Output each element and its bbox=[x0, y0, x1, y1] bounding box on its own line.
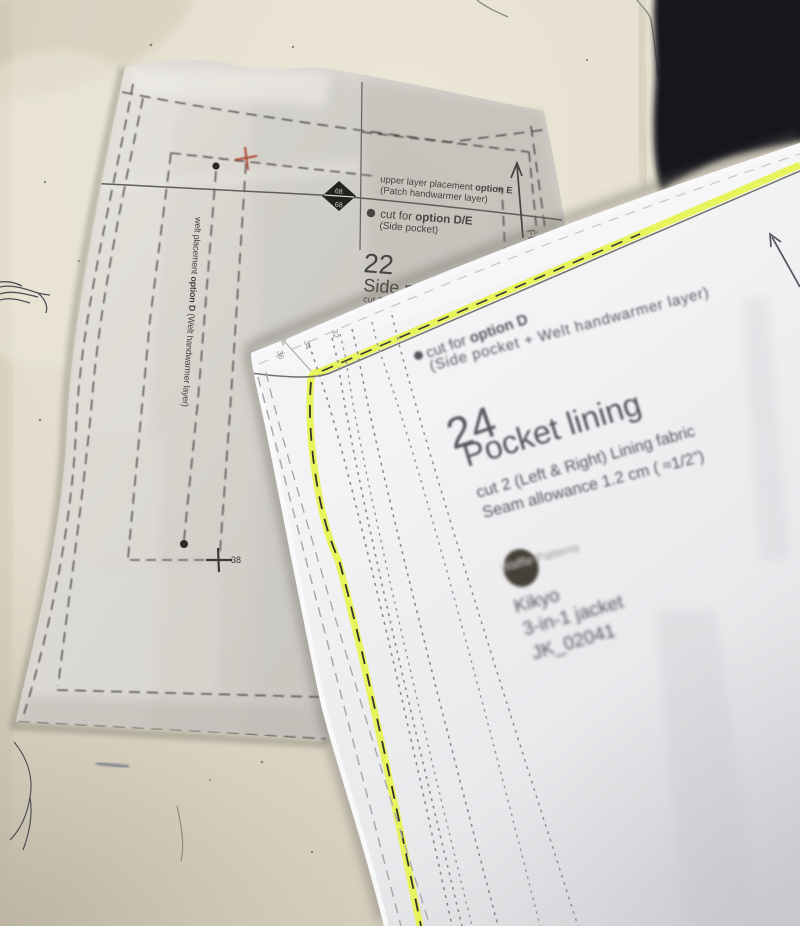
svg-text:38: 38 bbox=[231, 555, 241, 565]
svg-text:68: 68 bbox=[335, 202, 343, 210]
svg-text:68: 68 bbox=[335, 188, 343, 196]
